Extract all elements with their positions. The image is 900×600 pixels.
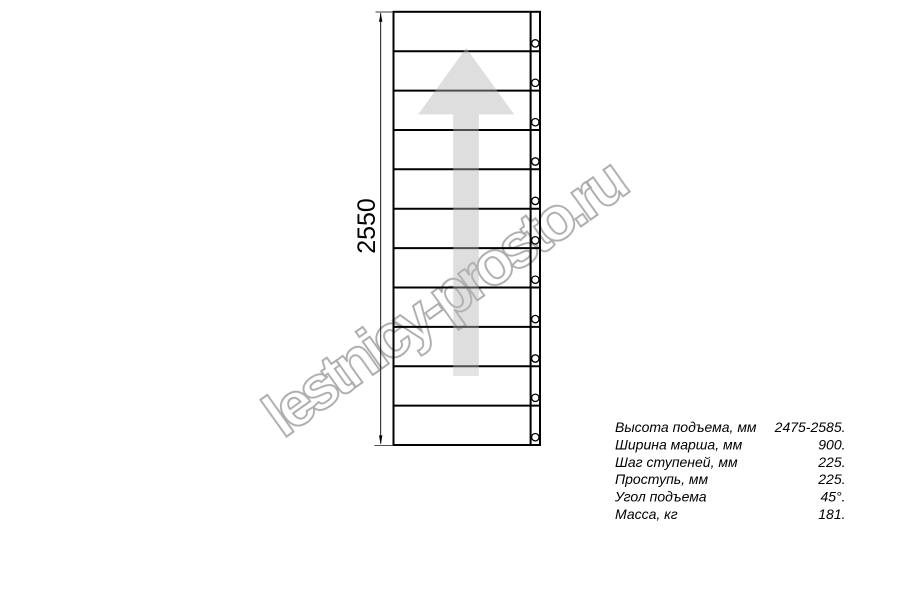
svg-text:45°.: 45°.: [820, 489, 845, 505]
svg-text:Угол подъема: Угол подъема: [614, 489, 707, 505]
svg-text:2475-2585.: 2475-2585.: [774, 419, 846, 435]
svg-text:181.: 181.: [818, 506, 845, 522]
svg-text:2550: 2550: [353, 198, 381, 254]
svg-text:Масса, кг: Масса, кг: [615, 506, 678, 522]
svg-text:Высота подъема, мм: Высота подъема, мм: [615, 419, 757, 435]
svg-text:Проступь, мм: Проступь, мм: [615, 471, 709, 487]
svg-text:900.: 900.: [818, 436, 845, 452]
svg-text:225.: 225.: [817, 471, 845, 487]
svg-text:225.: 225.: [817, 454, 845, 470]
svg-text:Ширина марша, мм: Ширина марша, мм: [615, 436, 743, 452]
svg-text:Шаг ступеней, мм: Шаг ступеней, мм: [615, 454, 738, 470]
